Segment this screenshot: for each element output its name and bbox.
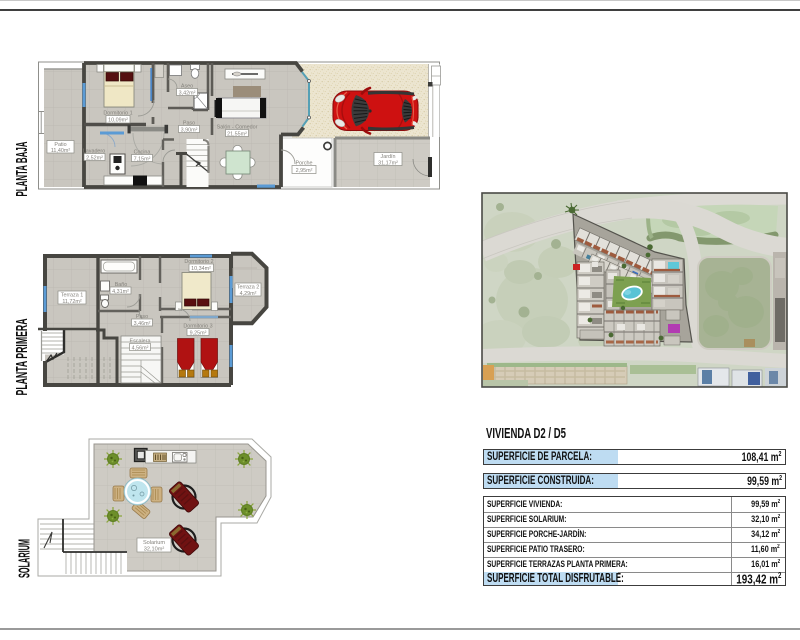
svg-text:3,46m²: 3,46m² [134, 321, 151, 327]
svg-text:11,72m²: 11,72m² [62, 299, 82, 305]
svg-text:7,15m²: 7,15m² [134, 156, 151, 162]
svg-text:31,17m²: 31,17m² [378, 160, 398, 166]
svg-text:Terraza 2: Terraza 2 [237, 285, 259, 291]
svg-text:10,09m²: 10,09m² [108, 118, 128, 124]
svg-text:21,55m²: 21,55m² [227, 131, 247, 137]
svg-text:10,34m²: 10,34m² [191, 266, 211, 272]
svg-text:Terraza 1: Terraza 1 [61, 293, 83, 299]
svg-text:3,90m²: 3,90m² [181, 127, 198, 133]
svg-text:2,52m²: 2,52m² [86, 155, 103, 161]
svg-text:32,10m²: 32,10m² [144, 547, 165, 553]
svg-text:2,95m²: 2,95m² [296, 168, 313, 174]
svg-text:9,25m²: 9,25m² [190, 330, 207, 336]
svg-text:PLANTA BAJA: PLANTA BAJA [14, 141, 31, 196]
svg-text:4,31m²: 4,31m² [112, 289, 129, 295]
svg-text:3,42m²: 3,42m² [179, 90, 196, 96]
svg-text:SOLARIUM: SOLARIUM [17, 539, 34, 578]
svg-text:4,29m²: 4,29m² [240, 291, 257, 297]
svg-text:11,40m²: 11,40m² [51, 148, 71, 154]
svg-text:PLANTA PRIMERA: PLANTA PRIMERA [14, 318, 31, 395]
svg-text:Solarium: Solarium [143, 540, 165, 546]
svg-text:4,56m²: 4,56m² [132, 345, 149, 351]
svg-text:Jardín: Jardín [381, 154, 396, 160]
